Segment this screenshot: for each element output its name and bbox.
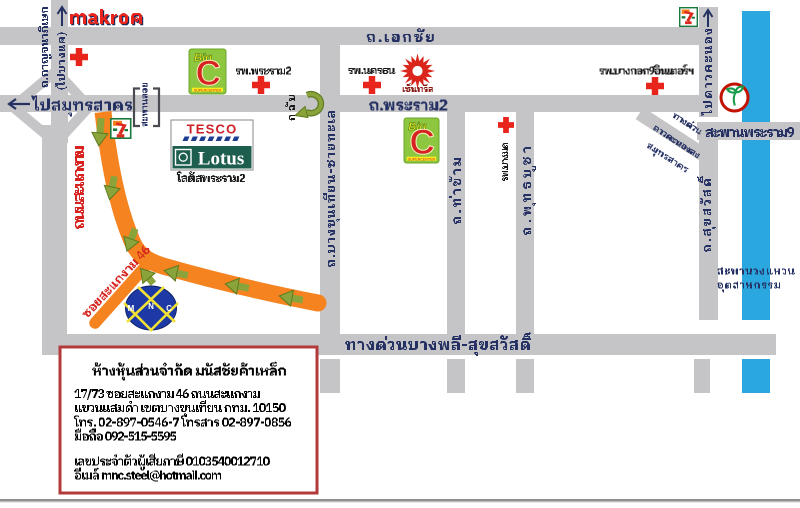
svg-text:TESCO: TESCO [187, 122, 238, 137]
svg-text:SUPERCENTER: SUPERCENTER [408, 157, 436, 161]
svg-text:C: C [410, 123, 435, 162]
svg-text:C: C [166, 304, 172, 313]
svg-text:C: C [196, 54, 221, 93]
svg-text:N: N [148, 302, 154, 311]
svg-text:M: M [128, 304, 135, 313]
svg-text:SUPERCENTER: SUPERCENTER [194, 88, 222, 92]
svg-text:Lotus: Lotus [198, 149, 244, 170]
